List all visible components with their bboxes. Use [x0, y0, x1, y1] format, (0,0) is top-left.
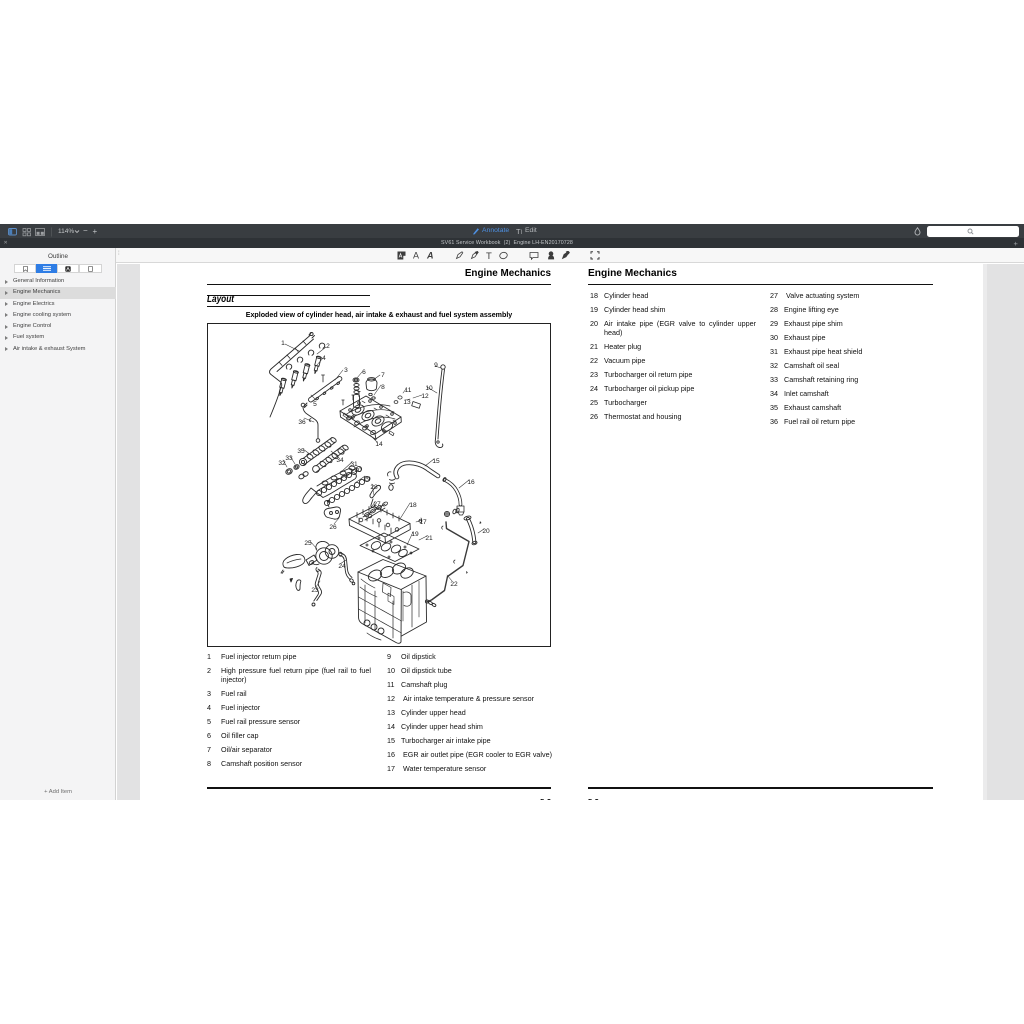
svg-text:29: 29 [363, 476, 371, 483]
svg-text:23: 23 [311, 587, 319, 594]
svg-text:6: 6 [362, 369, 366, 376]
svg-text:A: A [426, 251, 434, 260]
svg-text:19: 19 [411, 531, 419, 538]
svg-text:9: 9 [434, 362, 438, 369]
svg-text:17: 17 [419, 519, 427, 526]
svg-text:34: 34 [336, 457, 344, 464]
svg-text:22: 22 [450, 581, 458, 588]
svg-text:7: 7 [381, 372, 385, 379]
svg-text:18: 18 [409, 502, 417, 509]
svg-text:26: 26 [329, 524, 337, 531]
svg-text:30: 30 [354, 467, 362, 474]
svg-text:11: 11 [405, 387, 412, 394]
svg-text:13: 13 [403, 399, 411, 406]
svg-text:16: 16 [467, 479, 475, 486]
svg-text:A: A [413, 251, 419, 260]
svg-text:2: 2 [326, 343, 330, 350]
svg-text:8: 8 [381, 384, 385, 391]
svg-text:15: 15 [432, 458, 440, 465]
svg-text:35: 35 [297, 448, 305, 455]
svg-text:14: 14 [375, 441, 383, 448]
svg-text:21: 21 [425, 535, 433, 542]
svg-text:3: 3 [344, 367, 348, 374]
svg-text:4: 4 [322, 355, 326, 362]
svg-text:27: 27 [373, 501, 381, 508]
svg-text:24: 24 [338, 563, 346, 570]
svg-text:12: 12 [421, 393, 429, 400]
svg-text:25: 25 [304, 540, 312, 547]
svg-text:33: 33 [285, 455, 293, 462]
svg-text:20: 20 [482, 528, 490, 535]
svg-text:32: 32 [278, 460, 286, 467]
svg-text:T: T [486, 251, 492, 260]
svg-text:28: 28 [370, 484, 378, 491]
svg-text:36: 36 [298, 419, 306, 426]
svg-text:10: 10 [425, 385, 433, 392]
svg-text:5: 5 [313, 401, 317, 408]
svg-text:1: 1 [281, 340, 285, 347]
